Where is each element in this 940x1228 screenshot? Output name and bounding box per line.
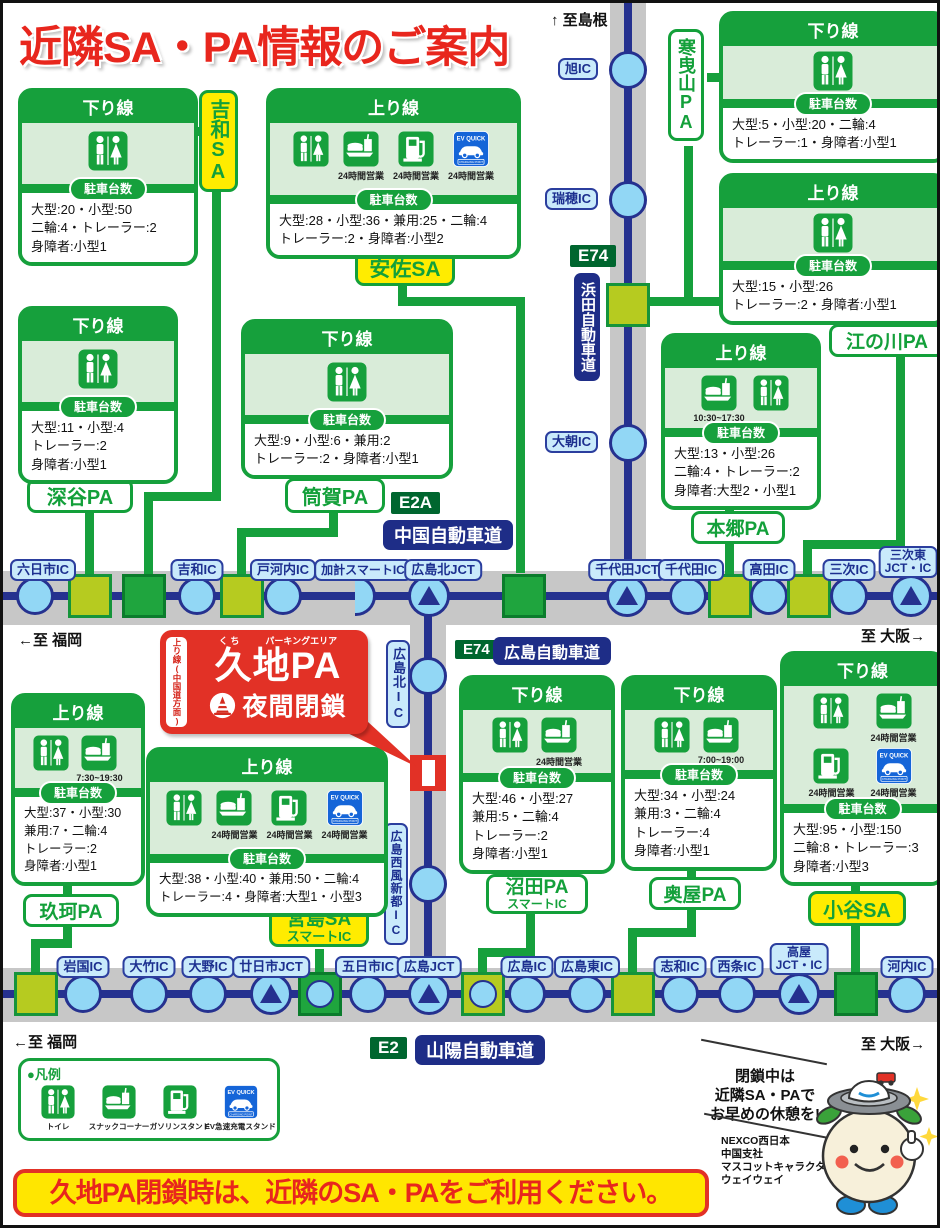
ic-marker-hiroshima-higashi [568, 975, 606, 1013]
jct-marker-chiyoda [606, 575, 648, 617]
route-badge-e74-hiroshima: E74 [455, 640, 498, 659]
toilet-icon [654, 717, 690, 753]
lane-heading: 上り線 [723, 177, 940, 208]
parking-band: 駐車台数 [22, 402, 174, 411]
ic-marker-iwakuni [64, 975, 102, 1013]
snack-icon [343, 131, 379, 167]
route-badge-e74-hamada: E74 [570, 245, 616, 267]
ic-marker-kochi [888, 975, 926, 1013]
night-closure-text: 夜間閉鎖 [242, 687, 346, 723]
jct-marker-hatsukaichi [250, 973, 292, 1015]
ic-label-hiroshima-higashi: 広島東IC [554, 956, 620, 978]
parking-count-badge: 駐車台数 [39, 781, 117, 805]
open-hours: 24時間営業 [338, 169, 384, 182]
facility-icons [723, 46, 940, 93]
parking-line: 大型:38・小型:40・兼用:50・二輪:4 [159, 871, 375, 889]
parking-lines: 大型:5・小型:20・二輪:4 トレーラー:1・身障者:小型1 [723, 108, 940, 159]
parking-line: 二輪:4・トレーラー:2 [31, 219, 185, 237]
jct-marker-miyoshi-higashi [890, 575, 932, 617]
jct-label-miyoshi-higashi: 三次東JCT・IC [879, 546, 938, 578]
info-box-kodani-down: 下り線 24時間営業 24時間営業 24時間営業 駐車台数 大型:95・小型:1… [780, 651, 940, 886]
parking-count-badge: 駐車台数 [660, 763, 738, 787]
ic-marker-shiwa [661, 975, 699, 1013]
facility-icons [723, 208, 940, 255]
gas-icon [271, 790, 307, 826]
jct-triangle-icon [418, 586, 440, 605]
route-badge-e2a: E2A [391, 492, 440, 514]
parking-lines: 大型:9・小型:6・兼用:2 トレーラー:2・身障者:小型1 [245, 424, 449, 475]
jct-triangle-icon [260, 984, 282, 1003]
jct-marker-hiroshima [408, 973, 450, 1015]
info-box-gonokawa-up: 上り線 駐車台数 大型:15・小型:26 トレーラー:2・身障者:小型1 [719, 173, 940, 325]
direction-to-fukuoka-bottom: ←至 福岡 [13, 1031, 77, 1052]
gas-icon [163, 1085, 197, 1119]
ic-label-chiyoda: 千代田IC [658, 559, 724, 581]
parking-count-badge: 駐車台数 [308, 408, 386, 432]
toilet-icon [166, 790, 202, 826]
legend-item-snack: スナックコーナー [88, 1085, 149, 1132]
parking-line: 大型:9・小型:6・兼用:2 [254, 432, 440, 450]
kuji-pa-marker-bar [422, 760, 435, 786]
parking-line: 大型:11・小型:4 [31, 419, 165, 437]
area-label-numata-pa: 沼田PAスマートIC [486, 874, 588, 914]
ic-marker-seifu-shinto [409, 865, 447, 903]
area-label-tsutsuga-pa: 筒賀PA [285, 478, 385, 513]
legend-title: ●凡例 [27, 1064, 271, 1083]
parking-count-badge: 駐車台数 [702, 421, 780, 445]
open-hours: 24時間営業 [322, 828, 368, 841]
parking-lines: 大型:11・小型:4 トレーラー:2 身障者:小型1 [22, 411, 174, 480]
parking-lines: 大型:37・小型:30 兼用:7・二輪:4 トレーラー:2 身障者:小型1 [15, 797, 141, 882]
open-hours: 24時間営業 [211, 828, 257, 841]
parking-lines: 大型:95・小型:150 二輪:8・トレーラー:3 身障者:小型3 [784, 813, 940, 882]
ic-marker-yoshiwa [178, 577, 216, 615]
facility-icons: 10:30~17:30 [665, 368, 817, 424]
parking-count-badge: 駐車台数 [794, 254, 872, 278]
connector [237, 528, 336, 537]
jct-triangle-icon [788, 984, 810, 1003]
pa-marker-kanbikiyama [606, 283, 650, 327]
legend-item-gas: ガソリンスタンド [149, 1085, 210, 1132]
open-hours: 24時間営業 [393, 169, 439, 182]
toilet-icon [33, 735, 69, 771]
parking-band: 駐車台数 [22, 184, 194, 193]
sa-marker-yoshiwa [122, 574, 166, 618]
parking-line: 兼用:3・二輪:4 [634, 805, 764, 823]
jct-label-chiyoda: 千代田JCT [588, 559, 666, 581]
ic-label-shiwa: 志和IC [653, 956, 706, 978]
parking-band: 駐車台数 [270, 195, 517, 204]
parking-line: 二輪:4・トレーラー:2 [674, 463, 808, 481]
connector [725, 541, 734, 575]
parking-line: 身障者:小型1 [24, 858, 132, 876]
ic-label-iwakuni: 岩国IC [56, 956, 109, 978]
info-box-kanbikiyama-down: 下り線 駐車台数 大型:5・小型:20・二輪:4 トレーラー:1・身障者:小型1 [719, 11, 940, 163]
facility-icons [22, 341, 174, 392]
ic-marker-chiyoda [669, 577, 707, 615]
jct-label-line2: JCT・IC [776, 959, 823, 972]
snack-icon [703, 717, 739, 753]
parking-line: 身障者:小型1 [472, 845, 602, 863]
ic-marker-mizuho [609, 181, 647, 219]
parking-band: 駐車台数 [150, 854, 384, 863]
lane-heading: 下り線 [463, 679, 611, 710]
parking-count-badge: 駐車台数 [794, 92, 872, 116]
direction-to-fukuoka-mid: ←至 福岡 [18, 629, 82, 650]
parking-line: トレーラー:2・身障者:小型2 [279, 230, 508, 248]
parking-line: 身障者:小型1 [31, 238, 185, 256]
info-box-numata-down: 下り線 24時間営業 駐車台数 大型:46・小型:27 兼用:5・二輪:4 トレ… [459, 675, 615, 874]
toilet-icon [78, 349, 118, 389]
jct-label-hiroshimakita: 広島北JCT [404, 559, 482, 581]
pa-marker-gonokawa [787, 574, 831, 618]
parking-count-badge: 駐車台数 [498, 766, 576, 790]
sapa-info-map: 近隣SA・PA情報のご案内 ↑ 至島根 ←至 福岡 至 大阪→ ←至 福岡 至 … [0, 0, 940, 1228]
area-label-kanbikiyama-pa: 寒曳山PA [668, 29, 704, 141]
jct-marker-takaya [778, 973, 820, 1015]
jct-triangle-icon [616, 586, 638, 605]
toilet-icon [327, 362, 367, 402]
direction-to-shimane: ↑ 至島根 [551, 9, 608, 30]
area-label-yoshiwa-sa: 吉和SA [199, 90, 238, 192]
ic-label-mizuho: 瑞穂IC [545, 188, 598, 210]
facility-icons: 7:30~19:30 [15, 728, 141, 784]
ic-label-takata: 高田IC [742, 559, 795, 581]
ic-label-saijo: 西条IC [710, 956, 763, 978]
facility-icons [245, 354, 449, 405]
jct-label-takaya: 高屋JCT・IC [770, 943, 829, 975]
parking-band: 駐車台数 [625, 770, 773, 779]
parking-line: トレーラー:2 [472, 827, 602, 845]
connector [144, 492, 221, 501]
smart-ic-marker-numata [461, 972, 505, 1016]
ic-label-oasa: 大朝IC [545, 431, 598, 453]
open-hours: 24時間営業 [266, 828, 312, 841]
info-box-asa-up: 上り線 24時間営業 24時間営業 24時間営業 駐車台数 大型:28・小型:3… [266, 88, 521, 259]
info-box-kuga-up: 上り線 7:30~19:30 駐車台数 大型:37・小型:30 兼用:7・二輪:… [11, 693, 145, 886]
info-box-fukaya-down: 下り線 駐車台数 大型:11・小型:4 トレーラー:2 身障者:小型1 [18, 306, 178, 484]
gas-icon [813, 748, 849, 784]
highway-name-sanyo: 山陽自動車道 [415, 1035, 545, 1065]
lane-heading: 下り線 [22, 92, 194, 123]
smart-ic-marker-miyajima [298, 972, 342, 1016]
ic-label-hiroshima: 広島IC [500, 956, 553, 978]
smart-ic-circle [306, 980, 334, 1008]
toilet-icon [88, 131, 128, 171]
parking-line: 身障者:小型1 [31, 456, 165, 474]
connector [144, 498, 153, 578]
jct-label-hiroshima: 広島JCT [397, 956, 462, 978]
parking-line: トレーラー:4 [634, 824, 764, 842]
parking-line: 身障者:小型3 [793, 858, 932, 876]
parking-band: 駐車台数 [723, 261, 940, 270]
parking-lines: 大型:34・小型:24 兼用:3・二輪:4 トレーラー:4 身障者:小型1 [625, 779, 773, 867]
direction-to-osaka-mid: 至 大阪→ [861, 625, 925, 646]
parking-line: 大型:28・小型:36・兼用:25・二輪:4 [279, 212, 508, 230]
parking-line: 兼用:7・二輪:4 [24, 823, 132, 841]
parking-line: トレーラー:2・身障者:小型1 [254, 450, 440, 468]
toilet-icon [41, 1085, 75, 1119]
jct-marker-hiroshimakita [408, 575, 450, 617]
pa-marker-fukaya [68, 574, 112, 618]
ic-marker-miyoshi [830, 577, 868, 615]
ic-marker-togouchi [264, 577, 302, 615]
snack-icon [541, 717, 577, 753]
legend-item-toilet: トイレ [27, 1085, 88, 1132]
highway-name-hamada: 浜田自動車道 [574, 273, 600, 381]
facility-icons: 7:00~19:00 [625, 710, 773, 766]
mascot-character [809, 1059, 940, 1221]
connector [212, 175, 221, 501]
ic-label-itsukaichi: 五日市IC [335, 956, 401, 978]
lane-heading: 下り線 [784, 655, 940, 686]
ic-label-asahi: 旭IC [558, 58, 598, 80]
facility-icons: 24時間営業 24時間営業 24時間営業 [150, 782, 384, 844]
ic-label-kake-smart: 加計スマートIC [314, 559, 412, 581]
parking-band: 駐車台数 [784, 804, 940, 813]
parking-band: 駐車台数 [463, 773, 611, 782]
parking-lines: 大型:20・小型:50 二輪:4・トレーラー:2 身障者:小型1 [22, 193, 194, 262]
snack-icon [81, 735, 117, 771]
snack-icon [102, 1085, 136, 1119]
ic-marker-saijo [718, 975, 756, 1013]
ic-marker-hiroshimakita [409, 657, 447, 695]
legend-label: トイレ [46, 1121, 69, 1131]
ic-label-miyoshi: 三次IC [822, 559, 875, 581]
parking-line: 大型:34・小型:24 [634, 787, 764, 805]
ic-marker-otake [130, 975, 168, 1013]
parking-line: 大型:20・小型:50 [31, 201, 185, 219]
parking-band: 駐車台数 [665, 428, 817, 437]
facility-icons [22, 123, 194, 174]
pa-marker-kuga [14, 972, 58, 1016]
ev-quick-icon [876, 748, 912, 784]
ic-marker-asahi [609, 51, 647, 89]
parking-line: トレーラー:1・身障者:小型1 [732, 134, 934, 152]
parking-lines: 大型:13・小型:26 二輪:4・トレーラー:2 身障者:大型2・小型1 [665, 437, 817, 506]
parking-line: トレーラー:2 [31, 437, 165, 455]
facility-icons: 24時間営業 [463, 710, 611, 769]
area-label-line2: スマートIC [489, 898, 585, 911]
kuji-pa-name: 久地PA [192, 647, 364, 685]
jct-label-hatsukaichi: 廿日市JCT [232, 956, 310, 978]
ic-marker-takata [750, 577, 788, 615]
parking-line: トレーラー:4・身障者:大型1・小型3 [159, 889, 375, 907]
ic-label-hiroshimakita: 広島北IC [386, 640, 410, 728]
ic-label-rokunichi: 六日市IC [10, 559, 76, 581]
lane-heading: 下り線 [625, 679, 773, 710]
connector [516, 301, 525, 573]
connector [628, 933, 637, 975]
parking-line: 兼用:5・二輪:4 [472, 808, 602, 826]
connector [85, 509, 94, 575]
direction-to-osaka-bottom: 至 大阪→ [861, 1033, 925, 1054]
traffic-cone-icon [209, 692, 236, 719]
info-box-okuya-down: 下り線 7:00~19:00 駐車台数 大型:34・小型:24 兼用:3・二輪:… [621, 675, 777, 871]
parking-line: 大型:15・小型:26 [732, 278, 934, 296]
sa-marker-kodani [834, 972, 878, 1016]
parking-lines: 大型:28・小型:36・兼用:25・二輪:4 トレーラー:2・身障者:小型2 [270, 204, 517, 255]
parking-line: 身障者:小型1 [634, 842, 764, 860]
ic-marker-oasa [609, 424, 647, 462]
closure-notice-banner: 久地PA閉鎖時は、近隣のSA・PAをご利用ください。 [13, 1169, 709, 1217]
facility-icons: 24時間営業 24時間営業 24時間営業 [784, 686, 940, 800]
snack-icon [216, 790, 252, 826]
parking-line: 大型:13・小型:26 [674, 445, 808, 463]
connector [643, 297, 721, 306]
ic-marker-hiroshima [508, 975, 546, 1013]
ic-label-togouchi: 戸河内IC [250, 559, 316, 581]
info-box-tsutsuga-down: 下り線 駐車台数 大型:9・小型:6・兼用:2 トレーラー:2・身障者:小型1 [241, 319, 453, 479]
ic-label-ono: 大野IC [181, 956, 234, 978]
info-box-hongo-up: 上り線 10:30~17:30 駐車台数 大型:13・小型:26 二輪:4・トレ… [661, 333, 821, 510]
parking-line: 大型:46・小型:27 [472, 790, 602, 808]
connector [684, 146, 693, 304]
connector [628, 928, 696, 937]
gas-icon [398, 131, 434, 167]
jct-triangle-icon [418, 984, 440, 1003]
parking-count-badge: 駐車台数 [823, 797, 901, 821]
ev-quick-icon [327, 790, 363, 826]
lane-heading: 上り線 [15, 697, 141, 728]
ic-marker-ono [189, 975, 227, 1013]
parking-line: 大型:37・小型:30 [24, 805, 132, 823]
snack-icon [701, 375, 737, 411]
parking-count-badge: 駐車台数 [69, 177, 147, 201]
area-label-okuya-pa: 奥屋PA [649, 877, 741, 910]
parking-count-badge: 駐車台数 [228, 847, 306, 871]
area-label-line1: 沼田PA [489, 877, 585, 898]
pa-marker-okuya [611, 972, 655, 1016]
parking-line: 大型:5・小型:20・二輪:4 [732, 116, 934, 134]
legend-label: ガソリンスタンド [149, 1121, 210, 1131]
snack-icon [876, 693, 912, 729]
parking-band: 駐車台数 [15, 788, 141, 797]
connector [398, 297, 525, 306]
ic-label-otake: 大竹IC [122, 956, 175, 978]
area-label-gonokawa-pa: 江の川PA [829, 324, 940, 357]
parking-line: トレーラー:2・身障者:小型1 [732, 296, 934, 314]
legend-label: スナックコーナー [88, 1121, 149, 1131]
parking-band: 駐車台数 [245, 415, 449, 424]
legend-box: ●凡例 トイレ スナックコーナー ガソリンスタンド EV急速充電スタンド [18, 1058, 280, 1141]
toilet-icon [813, 51, 853, 91]
lane-heading: 上り線 [270, 92, 517, 123]
ic-marker-itsukaichi [349, 975, 387, 1013]
legend-item-ev: EV急速充電スタンド [210, 1085, 271, 1132]
info-box-yoshiwa-down: 下り線 駐車台数 大型:20・小型:50 二輪:4・トレーラー:2 身障者:小型… [18, 88, 198, 266]
highway-name-hiroshima: 広島自動車道 [493, 637, 611, 665]
page-title: 近隣SA・PA情報のご案内 [19, 13, 509, 75]
area-label-hongo-pa: 本郷PA [691, 511, 785, 544]
toilet-icon [492, 717, 528, 753]
parking-band: 駐車台数 [723, 99, 940, 108]
parking-line: トレーラー:2 [24, 841, 132, 859]
connector [803, 545, 812, 575]
jct-triangle-icon [900, 586, 922, 605]
jct-label-line2: JCT・IC [885, 562, 932, 575]
legend-label: EV急速充電スタンド [205, 1121, 276, 1131]
smart-ic-circle [469, 980, 497, 1008]
info-box-miyajima-up: 上り線 24時間営業 24時間営業 24時間営業 駐車台数 大型:38・小型:4… [146, 747, 388, 917]
connector [237, 533, 246, 575]
area-label-kuga-pa: 玖珂PA [23, 894, 119, 927]
parking-count-badge: 駐車台数 [59, 395, 137, 419]
connector [896, 354, 905, 546]
toilet-icon [753, 375, 789, 411]
lane-heading: 下り線 [245, 323, 449, 354]
sa-marker-asa [502, 574, 546, 618]
route-badge-e2: E2 [370, 1037, 407, 1059]
area-label-line2: スマートIC [272, 930, 366, 944]
lane-heading: 下り線 [22, 310, 174, 341]
toilet-icon [293, 131, 329, 167]
kuji-lane-label: 上り線(中国道方面) [166, 637, 187, 727]
lane-heading: 下り線 [723, 15, 940, 46]
parking-line: 二輪:8・トレーラー:3 [793, 839, 932, 857]
parking-lines: 大型:46・小型:27 兼用:5・二輪:4 トレーラー:2 身障者:小型1 [463, 782, 611, 870]
legend-items: トイレ スナックコーナー ガソリンスタンド EV急速充電スタンド [27, 1085, 271, 1132]
parking-lines: 大型:15・小型:26 トレーラー:2・身障者:小型1 [723, 270, 940, 321]
toilet-icon [813, 693, 849, 729]
ic-marker-rokunichi [16, 577, 54, 615]
highway-name-chugoku: 中国自動車道 [383, 520, 513, 550]
connector [851, 921, 860, 975]
parking-count-badge: 駐車台数 [354, 188, 432, 212]
lane-heading: 上り線 [665, 337, 817, 368]
kuji-pa-closure-banner: 上り線(中国道方面) く ち パーキングエリア 久地PA 夜間閉鎖 [160, 630, 368, 734]
facility-icons: 24時間営業 24時間営業 24時間営業 [270, 123, 517, 185]
ic-label-yoshiwa: 吉和IC [170, 559, 223, 581]
ev-quick-icon [453, 131, 489, 167]
area-label-kodani-sa: 小谷SA [808, 891, 906, 926]
ic-label-kochi: 河内IC [880, 956, 933, 978]
toilet-icon [813, 213, 853, 253]
parking-line: 大型:95・小型:150 [793, 821, 932, 839]
kuji-banner-main: く ち パーキングエリア 久地PA 夜間閉鎖 [192, 630, 368, 723]
open-hours: 24時間営業 [448, 169, 494, 182]
open-hours: 24時間営業 [871, 731, 917, 744]
parking-line: 身障者:大型2・小型1 [674, 482, 808, 500]
ev-quick-icon [224, 1085, 258, 1119]
